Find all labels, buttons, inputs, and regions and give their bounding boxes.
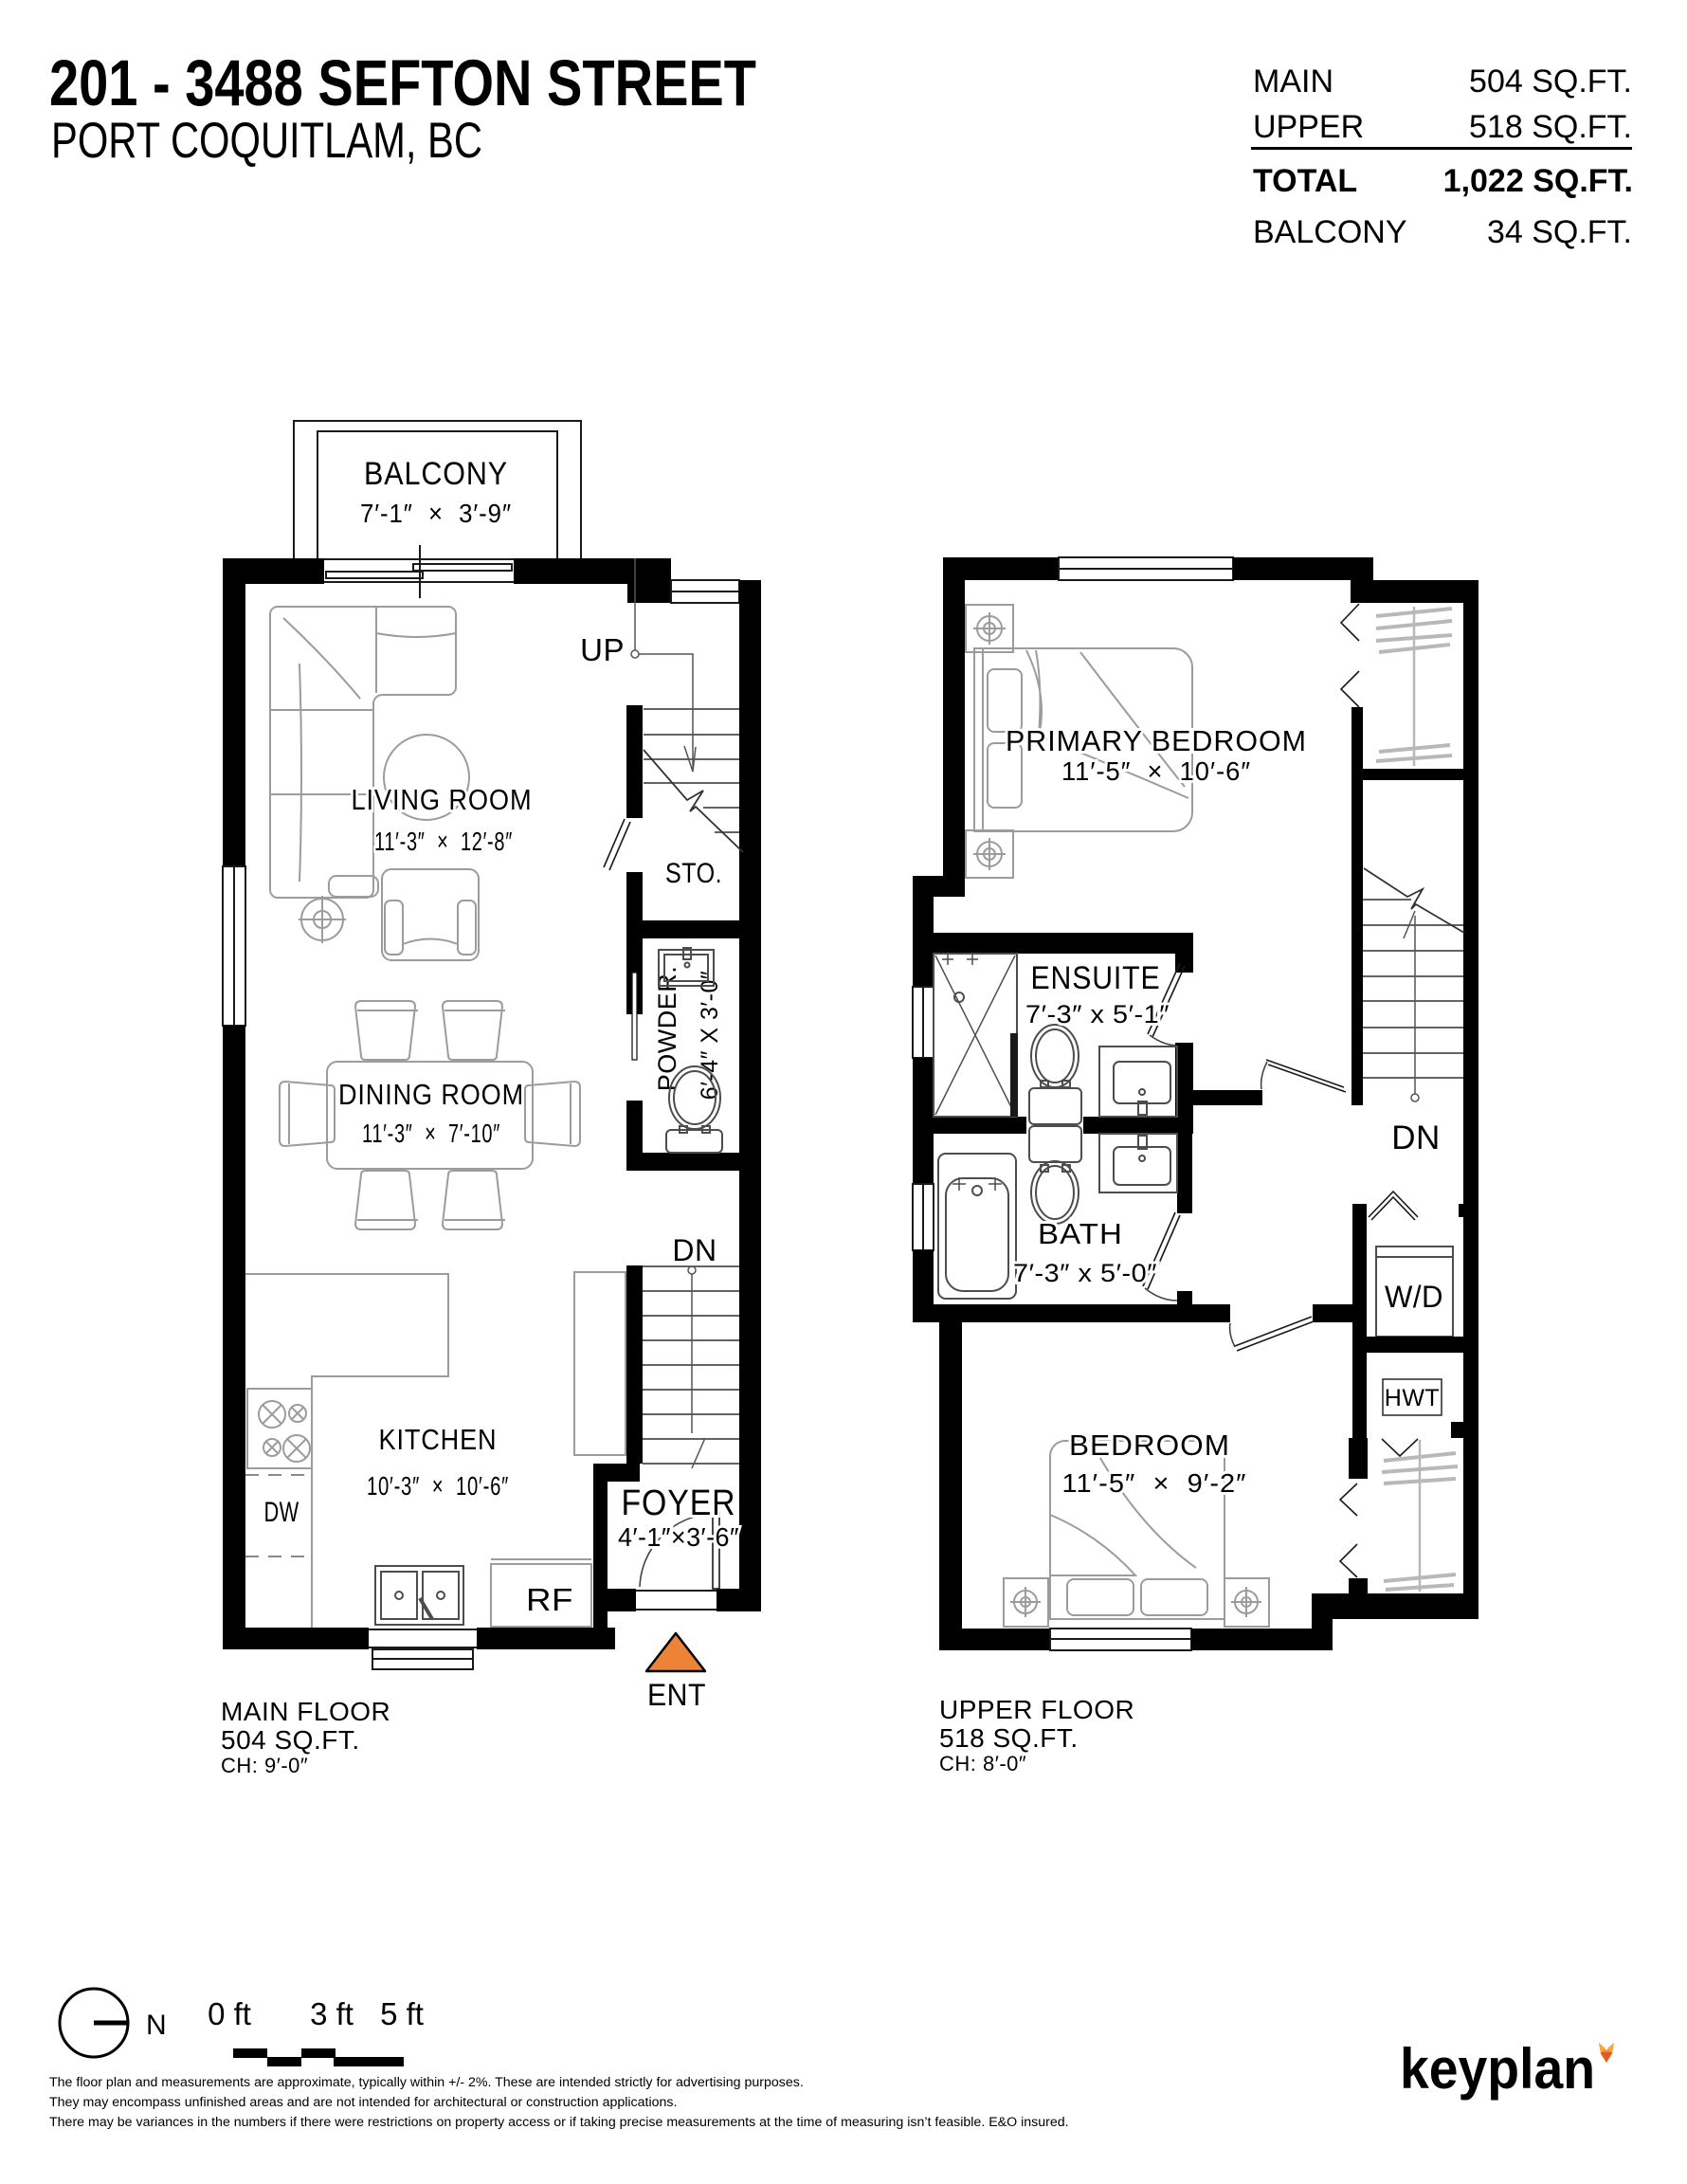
svg-text:CH: 9′-0″: CH: 9′-0″	[221, 1754, 308, 1777]
svg-text:11′-5″ × 10′-6″: 11′-5″ × 10′-6″	[1061, 756, 1251, 786]
svg-text:0 ft: 0 ft	[208, 1996, 251, 2031]
svg-text:STO.: STO.	[665, 858, 722, 889]
svg-text:11′-3″ × 7′-10″: 11′-3″ × 7′-10″	[362, 1119, 500, 1148]
svg-text:518 SQ.FT.: 518 SQ.FT.	[1469, 109, 1632, 145]
svg-text:PRIMARY BEDROOM: PRIMARY BEDROOM	[1006, 724, 1307, 757]
svg-text:11′-5″ × 9′-2″: 11′-5″ × 9′-2″	[1062, 1468, 1247, 1498]
svg-text:518 SQ.FT.: 518 SQ.FT.	[939, 1723, 1079, 1753]
svg-text:N: N	[146, 2010, 167, 2041]
svg-text:ENSUITE: ENSUITE	[1031, 960, 1161, 996]
svg-text:FOYER: FOYER	[622, 1483, 736, 1523]
svg-text:RF: RF	[526, 1582, 573, 1617]
svg-text:keyplan: keyplan	[1400, 2037, 1595, 2101]
svg-text:BATH: BATH	[1038, 1217, 1123, 1250]
svg-text:BALCONY: BALCONY	[1253, 214, 1407, 250]
svg-text:UPPER: UPPER	[1253, 109, 1364, 145]
svg-text:BALCONY: BALCONY	[364, 456, 508, 492]
svg-text:CH: 8′-0″: CH: 8′-0″	[939, 1752, 1026, 1775]
svg-text:ENT: ENT	[647, 1678, 706, 1712]
svg-text:DINING ROOM: DINING ROOM	[338, 1078, 524, 1111]
svg-text:10′-3″ × 10′-6″: 10′-3″ × 10′-6″	[367, 1471, 509, 1501]
svg-text:504 SQ.FT.: 504 SQ.FT.	[221, 1725, 360, 1755]
svg-text:7′-3″ x 5′-1″: 7′-3″ x 5′-1″	[1025, 1000, 1170, 1028]
svg-text:MAIN FLOOR: MAIN FLOOR	[221, 1697, 390, 1726]
svg-text:BEDROOM: BEDROOM	[1069, 1429, 1230, 1462]
svg-text:DN: DN	[672, 1233, 717, 1267]
svg-text:HWT: HWT	[1385, 1385, 1440, 1411]
svg-text:LIVING ROOM: LIVING ROOM	[352, 783, 533, 816]
svg-text:4′-1″×3′-6″: 4′-1″×3′-6″	[618, 1522, 739, 1552]
svg-text:They may encompass unfinished: They may encompass unfinished areas and …	[49, 2095, 677, 2110]
svg-text:11′-3″ × 12′-8″: 11′-3″ × 12′-8″	[374, 827, 513, 856]
svg-text:KITCHEN: KITCHEN	[379, 1423, 498, 1456]
svg-text:1,022 SQ.FT.: 1,022 SQ.FT.	[1443, 163, 1633, 199]
svg-text:7′-3″ x 5′-0″: 7′-3″ x 5′-0″	[1013, 1259, 1157, 1287]
svg-text:504 SQ.FT.: 504 SQ.FT.	[1469, 64, 1632, 100]
svg-text:UPPER FLOOR: UPPER FLOOR	[939, 1695, 1134, 1724]
svg-text:MAIN: MAIN	[1253, 64, 1333, 100]
svg-text:TOTAL: TOTAL	[1253, 163, 1357, 199]
svg-text:PORT COQUITLAM, BC: PORT COQUITLAM, BC	[51, 113, 482, 169]
svg-text:W/D: W/D	[1385, 1280, 1443, 1314]
svg-text:UP: UP	[580, 632, 625, 667]
svg-text:DN: DN	[1391, 1119, 1441, 1156]
svg-text:The floor plan and measurement: The floor plan and measurements are appr…	[49, 2075, 804, 2090]
svg-text:3 ft: 3 ft	[310, 1996, 354, 2031]
svg-text:POWDER.: POWDER.	[653, 966, 681, 1092]
svg-text:34 SQ.FT.: 34 SQ.FT.	[1487, 214, 1632, 250]
svg-text:5 ft: 5 ft	[380, 1996, 424, 2031]
svg-text:7′-1″ × 3′-9″: 7′-1″ × 3′-9″	[360, 499, 512, 528]
svg-text:There may be variances in the: There may be variances in the numbers if…	[49, 2115, 1069, 2130]
svg-text:DW: DW	[264, 1497, 299, 1528]
svg-text:201 - 3488 SEFTON STREET: 201 - 3488 SEFTON STREET	[49, 46, 756, 119]
